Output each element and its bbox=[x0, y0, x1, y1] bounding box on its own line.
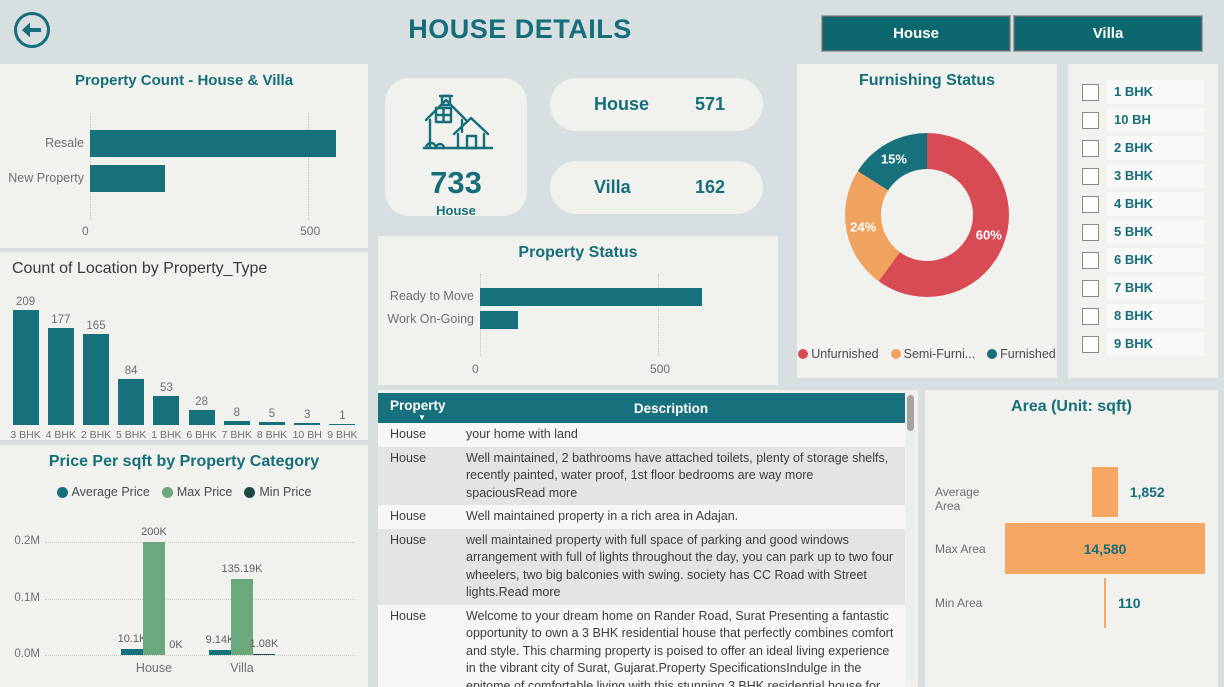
slicer-item-10-bh[interactable]: 10 BH bbox=[1082, 108, 1204, 132]
legend-label: Semi-Furni... bbox=[904, 347, 976, 361]
legend-dot bbox=[798, 349, 808, 359]
category-label: Villa bbox=[209, 661, 275, 675]
house-count-label: House bbox=[594, 94, 649, 115]
category-label: 6 BHK bbox=[185, 429, 219, 441]
data-label: 200K bbox=[129, 526, 179, 538]
category-label: House bbox=[121, 661, 187, 675]
x-axis-tick: 500 bbox=[650, 362, 680, 376]
slicer-item-7-bhk[interactable]: 7 BHK bbox=[1082, 276, 1204, 300]
bar-new-property[interactable] bbox=[90, 165, 165, 192]
data-label: 14,580 bbox=[1055, 541, 1155, 557]
slicer-label: 5 BHK bbox=[1107, 220, 1204, 244]
data-label: 110 bbox=[1118, 595, 1141, 611]
bar-villa-min-price[interactable] bbox=[253, 654, 275, 655]
slicer-label: 3 BHK bbox=[1107, 164, 1204, 188]
data-label: 0K bbox=[151, 639, 201, 651]
bar-8-bhk[interactable] bbox=[259, 422, 285, 425]
slice-label-unfurnished: 60% bbox=[976, 228, 1002, 243]
table-row[interactable]: Housewell maintained property with full … bbox=[378, 529, 905, 605]
property-description-table-panel: Property ▼ Description Houseyour home wi… bbox=[378, 390, 918, 687]
category-label: 1 BHK bbox=[149, 429, 183, 441]
column-group: 84 bbox=[115, 365, 147, 425]
legend-label: Min Price bbox=[259, 485, 311, 499]
slicer-item-2-bhk[interactable]: 2 BHK bbox=[1082, 136, 1204, 160]
data-label: 53 bbox=[160, 382, 173, 394]
property-count-chart-panel: Property Count - House & Villa 0500Resal… bbox=[0, 64, 368, 248]
bar-1-bhk[interactable] bbox=[153, 396, 179, 425]
slicer-label: 1 BHK bbox=[1107, 80, 1204, 104]
table-header: Property ▼ Description bbox=[378, 393, 905, 423]
bar-villa-average-price[interactable] bbox=[209, 650, 231, 655]
legend-dot bbox=[57, 487, 68, 498]
chart-title: Area (Unit: sqft) bbox=[925, 390, 1218, 416]
category-label: New Property bbox=[0, 171, 84, 185]
table-column-property[interactable]: Property bbox=[390, 398, 446, 413]
data-label: 135.19K bbox=[217, 563, 267, 575]
checkbox-unchecked[interactable] bbox=[1082, 84, 1099, 101]
bar-6-bhk[interactable] bbox=[189, 410, 215, 425]
chart-title: Property Count - House & Villa bbox=[0, 64, 368, 89]
data-label: 28 bbox=[195, 396, 208, 408]
data-label: 3 bbox=[304, 409, 310, 421]
price-chart-legend: Average PriceMax PriceMin Price bbox=[0, 485, 368, 499]
column-group: 209 bbox=[10, 296, 42, 425]
slicer-item-1-bhk[interactable]: 1 BHK bbox=[1082, 80, 1204, 104]
slicer-item-8-bhk[interactable]: 8 BHK bbox=[1082, 304, 1204, 328]
checkbox-unchecked[interactable] bbox=[1082, 252, 1099, 269]
bar-work-on-going[interactable] bbox=[480, 311, 518, 329]
legend-item: Max Price bbox=[162, 485, 233, 499]
gridline bbox=[45, 542, 355, 543]
y-axis-tick: 0.0M bbox=[4, 648, 40, 660]
checkbox-unchecked[interactable] bbox=[1082, 308, 1099, 325]
page-title: HOUSE DETAILS bbox=[340, 14, 700, 45]
slicer-label: 6 BHK bbox=[1107, 248, 1204, 272]
cell-description: Well maintained, 2 bathrooms have attach… bbox=[456, 447, 905, 506]
bar-house-average-price[interactable] bbox=[121, 649, 143, 655]
slicer-label: 8 BHK bbox=[1107, 304, 1204, 328]
x-axis-tick: 500 bbox=[300, 224, 330, 238]
table-row[interactable]: Houseyour home with land bbox=[378, 423, 905, 447]
slicer-item-9-bhk[interactable]: 9 BHK bbox=[1082, 332, 1204, 356]
category-label: Resale bbox=[0, 136, 84, 150]
legend-item: Unfurnished bbox=[798, 347, 878, 361]
cell-description: Well maintained property in a rich area … bbox=[456, 505, 905, 529]
slicer-item-3-bhk[interactable]: 3 BHK bbox=[1082, 164, 1204, 188]
chart-title: Count of Location by Property_Type bbox=[0, 252, 368, 278]
legend-item: Furnished bbox=[987, 347, 1056, 361]
bar-ready-to-move[interactable] bbox=[480, 288, 702, 306]
checkbox-unchecked[interactable] bbox=[1082, 140, 1099, 157]
bar-5-bhk[interactable] bbox=[118, 379, 144, 425]
data-label: 1,852 bbox=[1130, 484, 1165, 500]
table-row[interactable]: HouseWell maintained, 2 bathrooms have a… bbox=[378, 447, 905, 506]
column-group: 28 bbox=[186, 396, 218, 425]
house-total-label: House bbox=[385, 203, 527, 218]
column-group: 1 bbox=[326, 410, 358, 426]
column-group: 3 bbox=[291, 409, 323, 425]
category-label: Average Area bbox=[935, 485, 1007, 513]
data-label: 177 bbox=[51, 314, 70, 326]
category-label: 2 BHK bbox=[79, 429, 113, 441]
villa-count-card: Villa 162 bbox=[550, 161, 763, 214]
checkbox-unchecked[interactable] bbox=[1082, 224, 1099, 241]
legend-item: Average Price bbox=[57, 485, 150, 499]
category-label: Work On-Going bbox=[378, 312, 474, 326]
chart-title: Property Status bbox=[378, 236, 778, 262]
house-icon bbox=[414, 90, 498, 156]
slicer-label: 9 BHK bbox=[1107, 332, 1204, 356]
category-label: 4 BHK bbox=[44, 429, 78, 441]
checkbox-unchecked[interactable] bbox=[1082, 280, 1099, 297]
scrollbar-thumb[interactable] bbox=[907, 395, 914, 431]
gridline bbox=[658, 274, 659, 356]
category-label: 3 BHK bbox=[9, 429, 43, 441]
house-count-value: 571 bbox=[695, 94, 725, 115]
location-by-type-chart-panel: Count of Location by Property_Type 2093 … bbox=[0, 252, 368, 440]
legend-dot bbox=[162, 487, 173, 498]
house-total-value: 733 bbox=[385, 165, 527, 201]
cell-property: House bbox=[378, 605, 456, 687]
bar-resale[interactable] bbox=[90, 130, 336, 157]
data-label: 165 bbox=[86, 320, 105, 332]
villa-filter-button[interactable]: Villa bbox=[1014, 16, 1202, 51]
slicer-item-5-bhk[interactable]: 5 BHK bbox=[1082, 220, 1204, 244]
category-label: Min Area bbox=[935, 596, 1007, 610]
cell-property: House bbox=[378, 529, 456, 605]
checkbox-unchecked[interactable] bbox=[1082, 112, 1099, 129]
data-label: 1 bbox=[339, 410, 345, 422]
gridline bbox=[45, 599, 355, 600]
checkbox-unchecked[interactable] bbox=[1082, 336, 1099, 353]
x-axis-tick: 0 bbox=[472, 362, 502, 376]
y-axis-tick: 0.1M bbox=[4, 592, 40, 604]
legend-dot bbox=[244, 487, 255, 498]
house-filter-button[interactable]: House bbox=[822, 16, 1010, 51]
cell-property: House bbox=[378, 423, 456, 447]
column-group: 53 bbox=[150, 382, 182, 425]
slicer-label: 10 BH bbox=[1107, 108, 1204, 132]
villa-count-label: Villa bbox=[594, 177, 631, 198]
category-label: 7 BHK bbox=[220, 429, 254, 441]
table-scrollbar[interactable] bbox=[906, 393, 915, 681]
chart-title: Price Per sqft by Property Category bbox=[0, 445, 368, 471]
slicer-label: 7 BHK bbox=[1107, 276, 1204, 300]
data-label: 84 bbox=[125, 365, 138, 377]
back-button[interactable] bbox=[12, 10, 52, 50]
legend-item: Semi-Furni... bbox=[891, 347, 976, 361]
legend-label: Max Price bbox=[177, 485, 233, 499]
villa-count-value: 162 bbox=[695, 177, 725, 198]
cell-property: House bbox=[378, 447, 456, 506]
checkbox-unchecked[interactable] bbox=[1082, 168, 1099, 185]
data-label: 1.08K bbox=[239, 638, 289, 650]
property-status-chart-panel: Property Status 0500Ready to MoveWork On… bbox=[378, 236, 778, 385]
table-row[interactable]: HouseWell maintained property in a rich … bbox=[378, 505, 905, 529]
furnishing-legend: UnfurnishedSemi-Furni...Furnished bbox=[797, 347, 1057, 361]
slicer-label: 4 BHK bbox=[1107, 192, 1204, 216]
legend-label: Average Price bbox=[72, 485, 150, 499]
house-total-card: 733 House bbox=[385, 78, 527, 216]
bhk-slicer-panel: 1 BHK10 BH2 BHK3 BHK4 BHK5 BHK6 BHK7 BHK… bbox=[1068, 64, 1218, 378]
table-row[interactable]: HouseWelcome to your dream home on Rande… bbox=[378, 605, 905, 687]
category-label: 9 BHK bbox=[325, 429, 359, 441]
checkbox-unchecked[interactable] bbox=[1082, 196, 1099, 213]
slicer-label: 2 BHK bbox=[1107, 136, 1204, 160]
legend-label: Unfurnished bbox=[811, 347, 878, 361]
price-per-sqft-chart-panel: Price Per sqft by Property Category Aver… bbox=[0, 445, 368, 687]
slice-label-furnished: 15% bbox=[881, 152, 907, 167]
category-label: 5 BHK bbox=[114, 429, 148, 441]
gridline bbox=[45, 655, 355, 656]
bar-9-bhk[interactable] bbox=[329, 424, 355, 426]
table-column-description[interactable]: Description bbox=[456, 401, 886, 416]
category-label: 8 BHK bbox=[255, 429, 289, 441]
slice-label-semi-furni-: 24% bbox=[850, 220, 876, 235]
cell-description: your home with land bbox=[456, 423, 905, 447]
bar-3-bhk[interactable] bbox=[13, 310, 39, 425]
bar-4-bhk[interactable] bbox=[48, 328, 74, 425]
data-label: 8 bbox=[234, 407, 240, 419]
sort-desc-icon[interactable]: ▼ bbox=[418, 413, 426, 422]
legend-dot bbox=[891, 349, 901, 359]
category-label: Ready to Move bbox=[378, 289, 474, 303]
dashboard-canvas: HOUSE DETAILS House Villa Property Count… bbox=[0, 0, 1224, 687]
y-axis-tick: 0.2M bbox=[4, 535, 40, 547]
column-group: 165 bbox=[80, 320, 112, 425]
house-count-card: House 571 bbox=[550, 78, 763, 131]
column-group: 5 bbox=[256, 408, 288, 425]
funnel-bar-min-area[interactable] bbox=[1104, 578, 1106, 628]
cell-description: well maintained property with full space… bbox=[456, 529, 905, 605]
funnel-bar-average-area[interactable] bbox=[1092, 467, 1117, 517]
bar-10-bh[interactable] bbox=[294, 423, 320, 425]
legend-item: Min Price bbox=[244, 485, 311, 499]
table-body: Houseyour home with landHouseWell mainta… bbox=[378, 423, 905, 687]
cell-description: Welcome to your dream home on Rander Roa… bbox=[456, 605, 905, 687]
donut-hole bbox=[881, 169, 973, 261]
legend-label: Furnished bbox=[1000, 347, 1056, 361]
cell-property: House bbox=[378, 505, 456, 529]
category-label: 10 BH bbox=[290, 429, 324, 441]
data-label: 5 bbox=[269, 408, 275, 420]
legend-dot bbox=[987, 349, 997, 359]
column-group: 8 bbox=[221, 407, 253, 425]
category-label: Max Area bbox=[935, 542, 1007, 556]
x-axis-tick: 0 bbox=[82, 224, 112, 238]
column-group: 177 bbox=[45, 314, 77, 425]
bar-7-bhk[interactable] bbox=[224, 421, 250, 425]
back-arrow-icon bbox=[12, 10, 52, 50]
furnishing-status-chart-panel: Furnishing Status UnfurnishedSemi-Furni.… bbox=[797, 64, 1057, 378]
area-chart-panel: Area (Unit: sqft) Average Area1,852Max A… bbox=[925, 390, 1218, 687]
chart-title: Furnishing Status bbox=[797, 64, 1057, 90]
slicer-item-6-bhk[interactable]: 6 BHK bbox=[1082, 248, 1204, 272]
slicer-item-4-bhk[interactable]: 4 BHK bbox=[1082, 192, 1204, 216]
bar-2-bhk[interactable] bbox=[83, 334, 109, 425]
data-label: 209 bbox=[16, 296, 35, 308]
